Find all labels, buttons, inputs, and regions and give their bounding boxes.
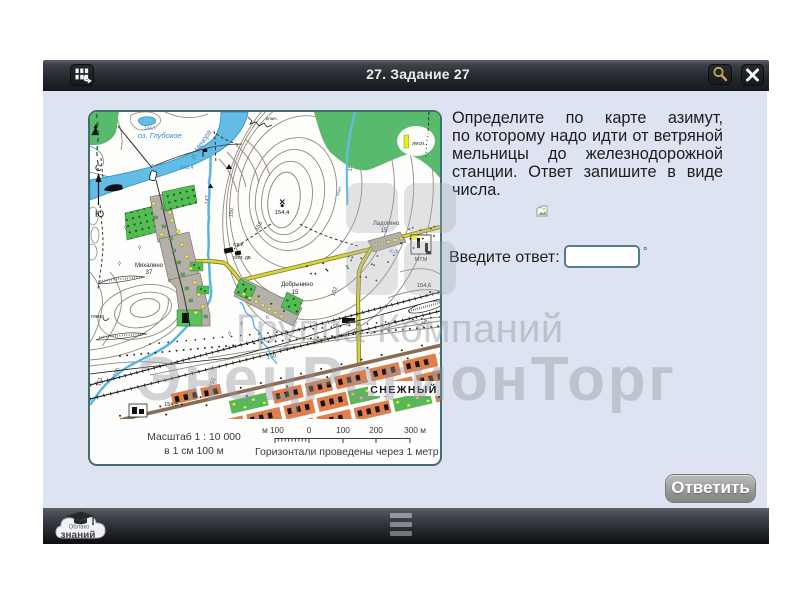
svg-text:200: 200 — [369, 425, 383, 435]
svg-text:Михалино: Михалино — [135, 263, 164, 269]
svg-text:оз. Глубокое: оз. Глубокое — [138, 131, 182, 140]
svg-text:глина: глина — [91, 314, 104, 320]
svg-text:154,4: 154,4 — [275, 210, 290, 216]
svg-text:0: 0 — [307, 425, 312, 435]
svg-text:144,5: 144,5 — [144, 126, 156, 131]
svg-text:лесн.: лесн. — [412, 141, 426, 147]
svg-text:15: 15 — [292, 290, 299, 296]
svg-text:100: 100 — [336, 425, 350, 435]
svg-text:знаний: знаний — [61, 530, 96, 541]
svg-text:С: С — [95, 163, 102, 173]
svg-text:Ю: Ю — [95, 209, 104, 219]
svg-text:143,4: 143,4 — [180, 165, 194, 171]
svg-text:скот. дв.: скот. дв. — [233, 255, 252, 261]
svg-text:ключ.: ключ. — [266, 116, 278, 121]
svg-text:Добрынино: Добрынино — [281, 282, 314, 288]
svg-text:300 м: 300 м — [404, 425, 426, 435]
svg-text:м 100: м 100 — [262, 425, 284, 435]
svg-text:37: 37 — [146, 270, 153, 276]
